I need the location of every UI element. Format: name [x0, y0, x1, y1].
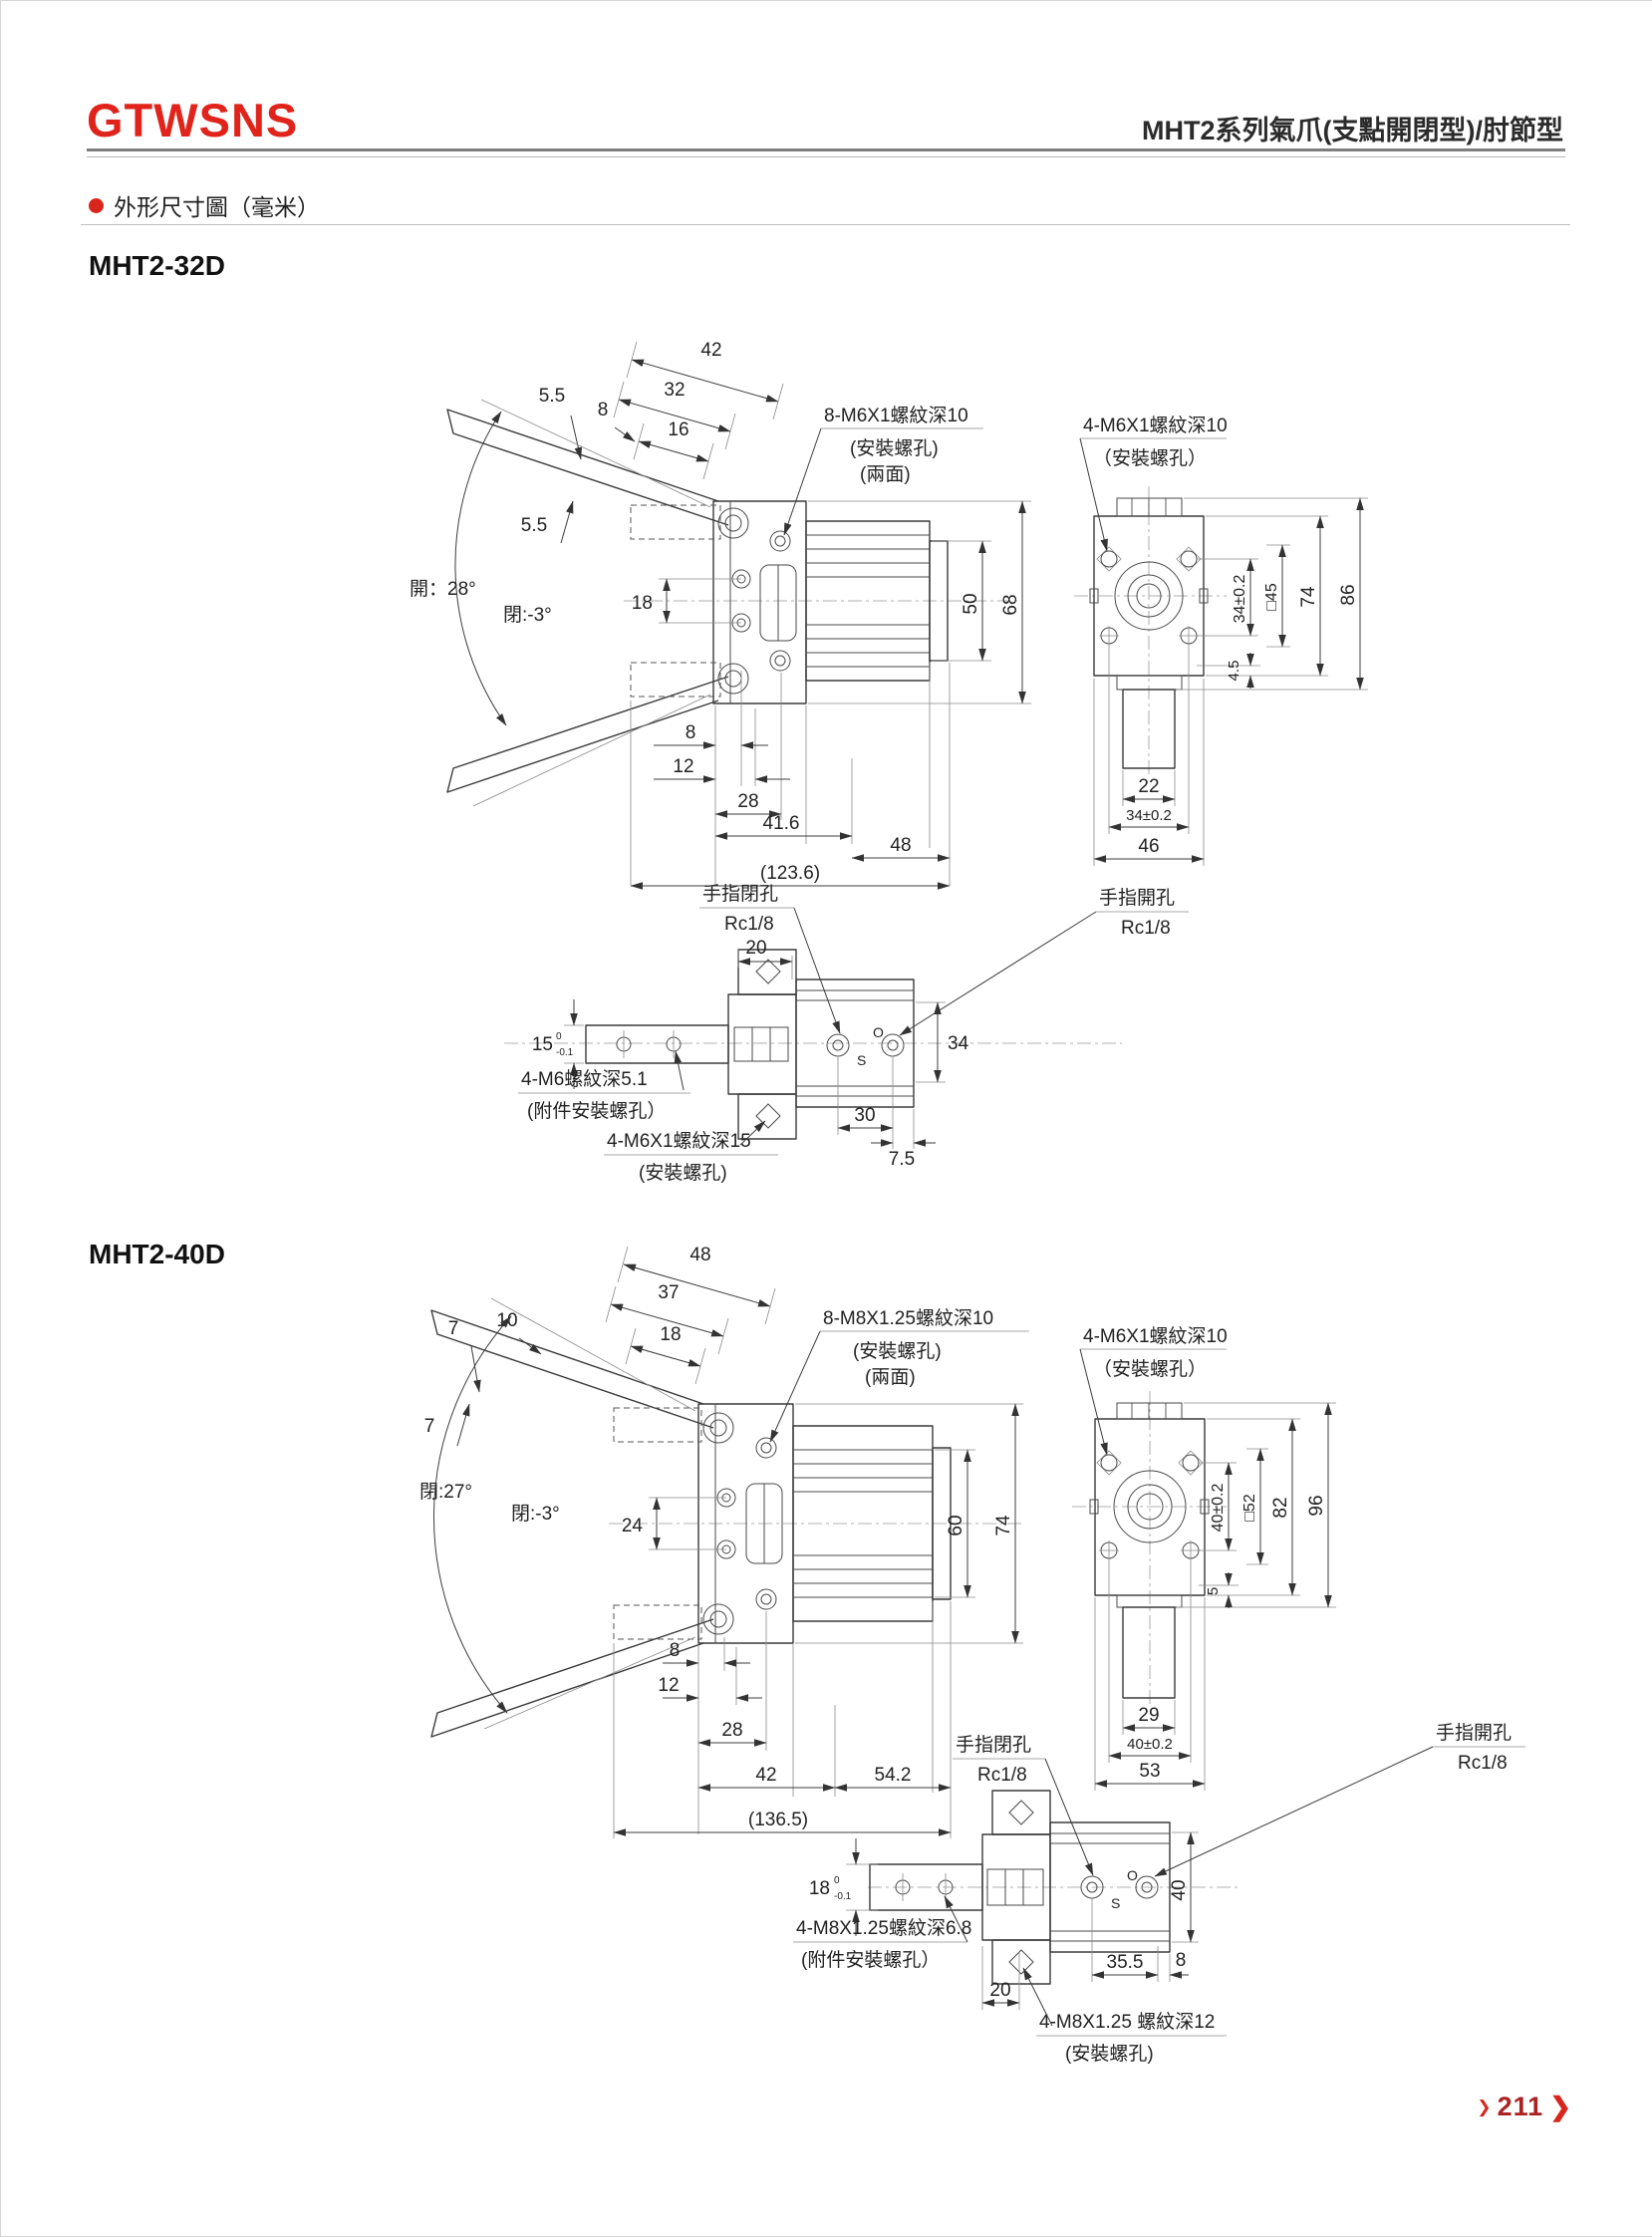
- dim-18b: 18: [809, 1878, 830, 1899]
- dim-16: 16: [668, 419, 688, 440]
- dim-8-top: 8: [598, 400, 609, 420]
- page-number: ❯ 211 ❯: [1477, 2092, 1571, 2122]
- note-4-m6x1-sub: （安裝螺孔）: [1093, 447, 1207, 469]
- m40-side-dimensions: 4-M6X1螺紋深10 （安裝螺孔） 40±0.2 □52 82 96 5 29: [1080, 1325, 1336, 1791]
- dim-41p6: 41.6: [763, 813, 800, 834]
- dim-7p5: 7.5: [889, 1149, 915, 1170]
- dim-18: 18: [632, 593, 653, 614]
- dim-40b: 40: [1169, 1879, 1190, 1900]
- dim-42f: 42: [755, 1765, 776, 1786]
- dim-4p5: 4.5: [1226, 661, 1242, 682]
- dim-sq45: □45: [1263, 583, 1280, 611]
- note-4-m8-attach-sub: (附件安裝螺孔）: [801, 1949, 940, 1971]
- dim-20: 20: [745, 938, 766, 959]
- m32-bottom-dimensions: 手指閉孔 Rc1/8 手指開孔 Rc1/8 20 15 0 -0.1 34 30…: [518, 883, 1189, 1184]
- note-8-m6x1: 8-M6X1螺紋深10: [824, 405, 968, 426]
- chevron-icon: ❯: [1477, 2097, 1491, 2117]
- dim-48: 48: [689, 1245, 710, 1265]
- label-finger-open-thread: Rc1/8: [1121, 918, 1171, 939]
- dim-5: 5: [1205, 1587, 1222, 1595]
- note-8-m6x1-sub1: (安裝螺孔): [850, 437, 939, 459]
- note-4-m6-attach: 4-M6螺紋深5.1: [521, 1068, 648, 1090]
- dim-12: 12: [673, 756, 693, 777]
- dim-15-tol-upper: 0: [556, 1031, 562, 1042]
- mark-supply-port: S: [857, 1052, 866, 1068]
- brand-logo: GTWSNS: [87, 93, 298, 147]
- label-finger-close-thread-40: Rc1/8: [977, 1765, 1027, 1786]
- chevron-icon: ❯: [1549, 2092, 1571, 2122]
- dim-28f: 28: [721, 1720, 742, 1741]
- mark-open-port-40: O: [1127, 1867, 1138, 1883]
- dim-32: 32: [664, 380, 685, 401]
- note-4-m8-deep12: 4-M8X1.25 螺紋深12: [1039, 2011, 1215, 2033]
- dim-34: 34: [948, 1033, 969, 1054]
- dim-82: 82: [1270, 1497, 1291, 1518]
- mark-open-port: O: [873, 1024, 884, 1040]
- dim-34pm-b: 34±0.2: [1126, 807, 1172, 824]
- catalog-page: GTWSNS MHT2系列氣爪(支點開閉型)/肘節型 外形尺寸圖（毫米） MHT…: [0, 0, 1652, 2237]
- note-4-m8-attach: 4-M8X1.25螺紋深6.8: [796, 1917, 971, 1939]
- dim-86: 86: [1338, 584, 1359, 605]
- dim-53: 53: [1139, 1761, 1160, 1782]
- label-finger-close-thread: Rc1/8: [724, 914, 774, 935]
- page-title: MHT2系列氣爪(支點開閉型)/肘節型: [1142, 109, 1563, 147]
- header-divider: [87, 148, 1565, 157]
- dim-40pm: 40±0.2: [1210, 1483, 1227, 1532]
- dim-7-a: 7: [448, 1318, 459, 1339]
- dim-5p5-a: 5.5: [539, 386, 565, 407]
- dim-50: 50: [961, 593, 981, 614]
- dim-29: 29: [1138, 1705, 1159, 1726]
- dim-7-b: 7: [424, 1416, 435, 1437]
- red-bullet-icon: [89, 198, 104, 213]
- angle-close-40: 閉:-3°: [511, 1504, 560, 1525]
- dim-18-tol-upper: 0: [834, 1875, 840, 1886]
- note-8-m8: 8-M8X1.25螺紋深10: [823, 1307, 993, 1329]
- note-8-m6x1-sub2: (兩面): [860, 464, 911, 485]
- section-divider: [81, 224, 1570, 225]
- angle-open-40: 閉:27°: [419, 1482, 472, 1503]
- dim-5p5-b: 5.5: [521, 515, 547, 536]
- note-4-m6x1: 4-M6X1螺紋深10: [1083, 415, 1228, 436]
- m32-front-view: [447, 410, 1017, 792]
- dim-8f: 8: [670, 1640, 681, 1661]
- mht2-32d-drawing: 42 32 16 8 5.5 5.5 開：28° 閉:-3° 18 50: [81, 240, 1575, 1207]
- dim-54p2: 54.2: [875, 1765, 912, 1786]
- angle-open: 開：28°: [410, 579, 476, 600]
- note-8-m8-sub2: (兩面): [865, 1367, 916, 1388]
- dim-30: 30: [854, 1105, 875, 1126]
- dim-15-tol-lower: -0.1: [556, 1047, 574, 1058]
- dim-sq52: □52: [1241, 1494, 1258, 1522]
- dim-74: 74: [1298, 586, 1319, 608]
- note-8-m8-sub1: (安裝螺孔): [853, 1340, 942, 1362]
- dim-15: 15: [532, 1034, 553, 1055]
- dim-37: 37: [658, 1282, 679, 1303]
- dim-total-123p6: (123.6): [760, 863, 820, 884]
- dim-35p5: 35.5: [1107, 1952, 1144, 1973]
- dim-18t: 18: [660, 1324, 681, 1345]
- note-4-m6-attach-sub: (附件安裝螺孔）: [527, 1100, 666, 1122]
- m40-front-dimensions: 48 37 10 18 7 7 閉:27° 閉:-3° 24 60: [419, 1245, 1029, 1838]
- label-finger-close-port: 手指閉孔: [702, 883, 778, 905]
- mht2-40d-drawing: 48 37 10 18 7 7 閉:27° 閉:-3° 24 60: [81, 1237, 1575, 2084]
- note-4-m6x1-40-sub: （安裝螺孔）: [1093, 1358, 1207, 1380]
- dim-28: 28: [737, 791, 758, 812]
- section-title: 外形尺寸圖（毫米）: [114, 188, 320, 222]
- dim-48: 48: [890, 835, 911, 856]
- dim-22: 22: [1138, 776, 1159, 797]
- dim-40pm-b: 40±0.2: [1127, 1736, 1173, 1753]
- dim-12f: 12: [658, 1675, 679, 1696]
- dim-96: 96: [1306, 1495, 1327, 1516]
- dim-8: 8: [686, 722, 696, 743]
- dim-8b: 8: [1176, 1950, 1187, 1971]
- dim-46: 46: [1138, 836, 1159, 857]
- dim-68: 68: [1000, 594, 1021, 615]
- note-4-m6x1-deep15-sub: (安裝螺孔): [639, 1162, 727, 1184]
- dim-34pm: 34±0.2: [1232, 574, 1248, 623]
- note-4-m8-deep12-sub: (安裝螺孔): [1065, 2043, 1154, 2065]
- label-finger-close-port-40: 手指閉孔: [956, 1734, 1031, 1756]
- page-number-value: 211: [1498, 2092, 1544, 2122]
- dim-42: 42: [700, 340, 721, 361]
- label-finger-open-port: 手指開孔: [1099, 887, 1175, 909]
- m32-side-dimensions: 4-M6X1螺紋深10 （安裝螺孔） 34±0.2 □45 74 86 4.5 …: [1080, 415, 1368, 866]
- section-heading: 外形尺寸圖（毫米）: [89, 188, 320, 222]
- dim-24: 24: [622, 1516, 644, 1537]
- mark-supply-port-40: S: [1111, 1895, 1120, 1911]
- label-finger-open-port-40: 手指開孔: [1436, 1722, 1512, 1744]
- note-4-m6x1-deep15: 4-M6X1螺紋深15: [607, 1130, 751, 1152]
- dim-20b: 20: [989, 1980, 1010, 2001]
- dim-74f: 74: [993, 1515, 1014, 1537]
- angle-close: 閉:-3°: [503, 605, 552, 626]
- dim-18-tol-lower: -0.1: [834, 1891, 852, 1902]
- label-finger-open-thread-40: Rc1/8: [1458, 1753, 1508, 1774]
- dim-60: 60: [946, 1515, 966, 1536]
- note-4-m6x1-40: 4-M6X1螺紋深10: [1083, 1325, 1228, 1347]
- dim-total-136p5: (136.5): [748, 1810, 808, 1830]
- m32-front-dimensions: 42 32 16 8 5.5 5.5 開：28° 閉:-3° 18 50: [410, 340, 1031, 886]
